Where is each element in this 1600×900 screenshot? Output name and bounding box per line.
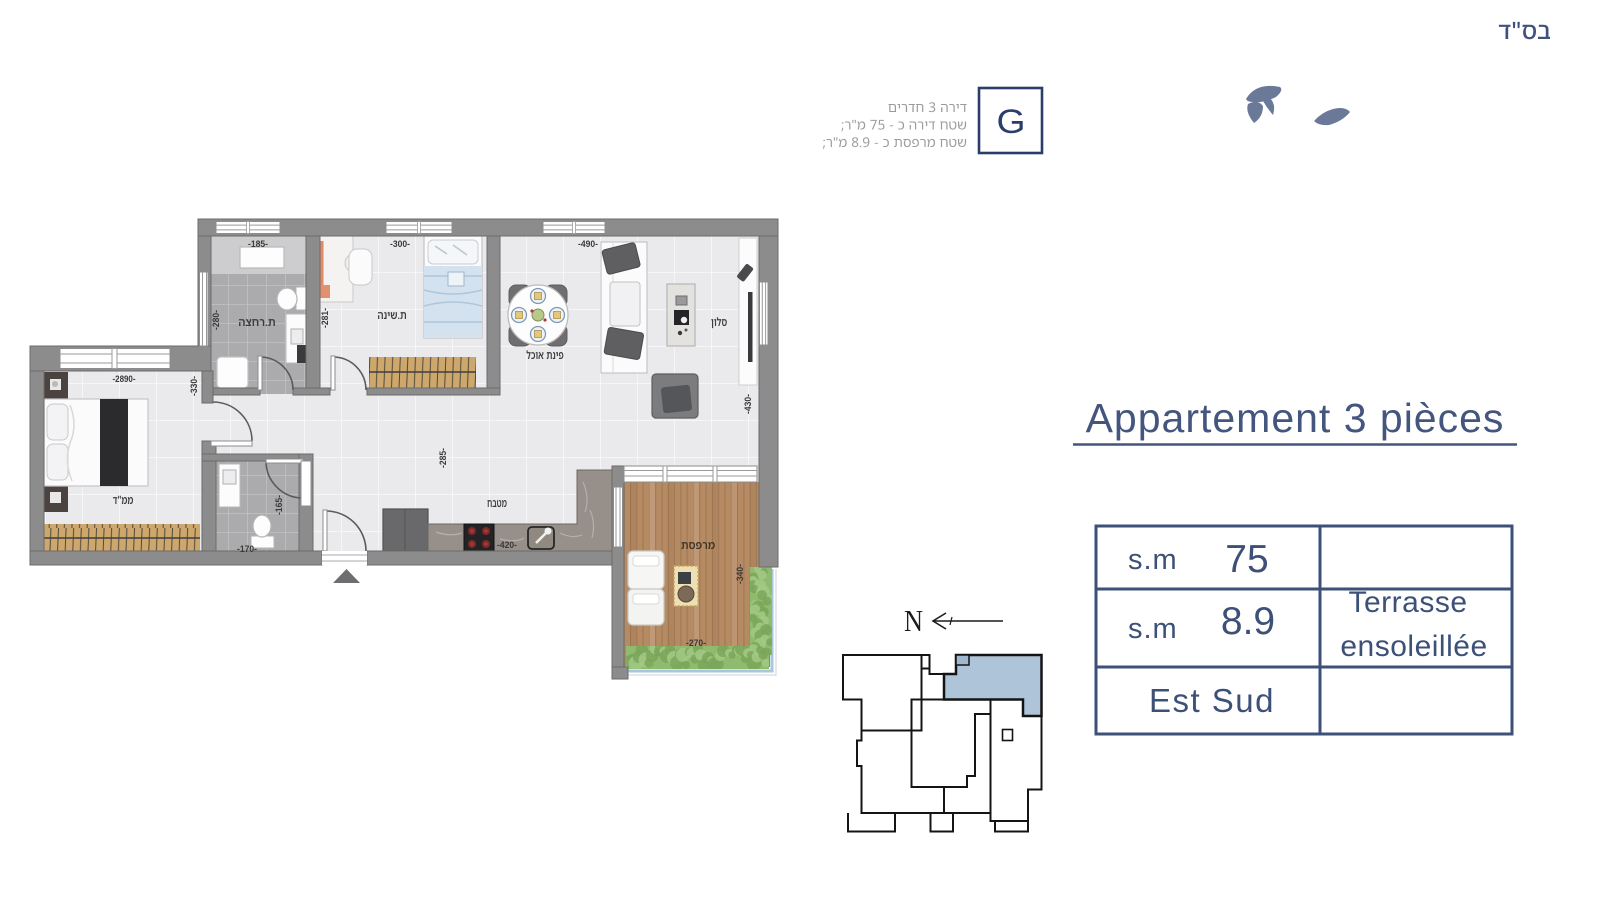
svg-text:-270-: -270-	[686, 638, 706, 648]
svg-text:G: G	[997, 103, 1026, 141]
svg-text:75: 75	[1225, 538, 1268, 581]
svg-text:-430-: -430-	[743, 394, 753, 414]
svg-text:-281-: -281-	[320, 308, 330, 328]
svg-text:ensoleillée: ensoleillée	[1340, 630, 1487, 663]
svg-text:Est Sud: Est Sud	[1149, 682, 1275, 719]
svg-text:-285-: -285-	[438, 448, 448, 468]
svg-text:-185-: -185-	[248, 239, 268, 249]
svg-text:-280-: -280-	[211, 310, 221, 330]
svg-text:-165-: -165-	[274, 495, 284, 515]
svg-text:-170-: -170-	[237, 544, 257, 554]
svg-text:-330-: -330-	[189, 376, 199, 396]
svg-text:-300-: -300-	[390, 239, 410, 249]
svg-text:-340-: -340-	[735, 564, 745, 584]
svg-text:-490-: -490-	[578, 239, 598, 249]
svg-text:-420-: -420-	[497, 540, 517, 550]
svg-text:s.m: s.m	[1128, 544, 1178, 576]
svg-text:8.9: 8.9	[1221, 600, 1275, 643]
svg-text:s.m: s.m	[1128, 613, 1178, 645]
svg-text:Terrasse: Terrasse	[1348, 586, 1467, 619]
svg-text:N: N	[904, 603, 923, 638]
svg-text:-2890-: -2890-	[113, 374, 136, 384]
svg-text:Appartement 3 pièces: Appartement 3 pièces	[1086, 395, 1505, 441]
